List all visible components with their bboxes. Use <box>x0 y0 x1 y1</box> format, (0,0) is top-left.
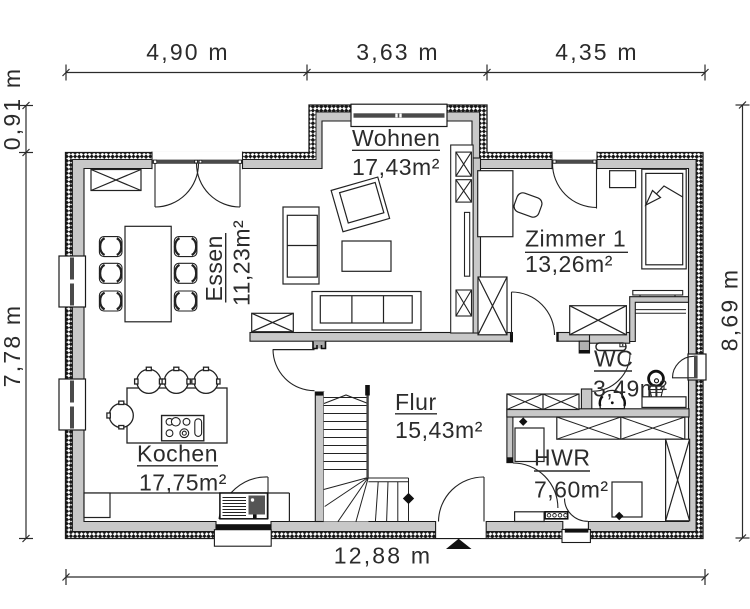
svg-text:Flur: Flur <box>395 389 437 415</box>
svg-text:4,90 m: 4,90 m <box>146 39 230 65</box>
svg-text:Kochen: Kochen <box>137 441 218 467</box>
svg-text:15,43m²: 15,43m² <box>395 417 483 443</box>
svg-text:13,26m²: 13,26m² <box>525 251 613 277</box>
svg-text:3,63 m: 3,63 m <box>356 39 440 65</box>
svg-text:7,60m²: 7,60m² <box>534 477 609 503</box>
svg-text:11,23m²: 11,23m² <box>229 220 255 306</box>
svg-text:Wohnen: Wohnen <box>352 125 440 151</box>
svg-text:WC: WC <box>594 346 633 372</box>
svg-text:17,75m²: 17,75m² <box>139 470 227 496</box>
svg-text:Essen: Essen <box>201 235 227 301</box>
svg-text:Zimmer 1: Zimmer 1 <box>525 226 626 252</box>
svg-text:HWR: HWR <box>534 445 590 471</box>
svg-text:8,69 m: 8,69 m <box>717 268 743 352</box>
svg-text:3,49m²: 3,49m² <box>593 376 668 402</box>
svg-text:4,35 m: 4,35 m <box>555 39 639 65</box>
svg-text:12,88 m: 12,88 m <box>334 543 433 569</box>
svg-text:0,91 m: 0,91 m <box>0 67 25 151</box>
svg-text:17,43m²: 17,43m² <box>352 154 440 180</box>
svg-text:7,78 m: 7,78 m <box>0 304 25 388</box>
